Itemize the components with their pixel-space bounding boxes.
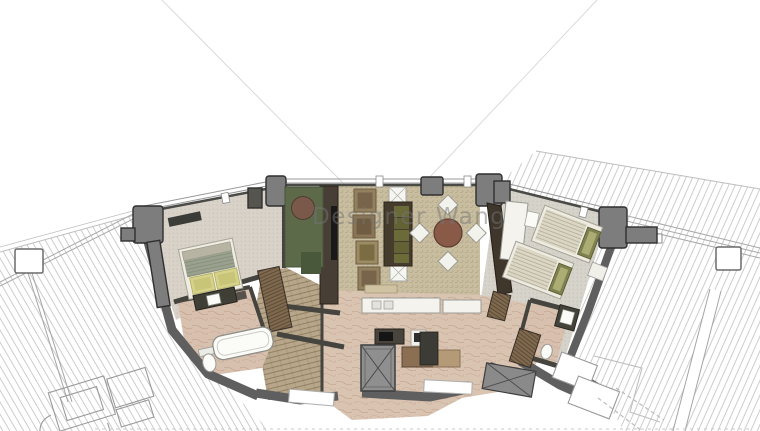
cooktop [379, 332, 393, 341]
step-platform-2 [424, 380, 473, 394]
balcony-column-left [15, 249, 43, 273]
column-center-left [266, 176, 286, 206]
sink-right [384, 301, 393, 309]
kitchen-counter-2 [443, 300, 481, 313]
tall-cabinet [420, 332, 438, 365]
elevator [361, 345, 395, 391]
column-center-mid [421, 177, 443, 195]
vanity-sink [206, 293, 221, 305]
floor-plan: Designer Wang [0, 0, 760, 431]
green-rug-dark [301, 252, 321, 274]
floor-plan-image: Designer Wang [0, 0, 760, 431]
balcony-column-right [716, 247, 741, 270]
watermark-text: Designer Wang [312, 204, 506, 230]
side-table-bottom [390, 264, 407, 281]
bench [365, 285, 397, 293]
column-west-corner [133, 206, 163, 243]
side-table-top [389, 187, 406, 204]
sink-left [372, 301, 381, 309]
